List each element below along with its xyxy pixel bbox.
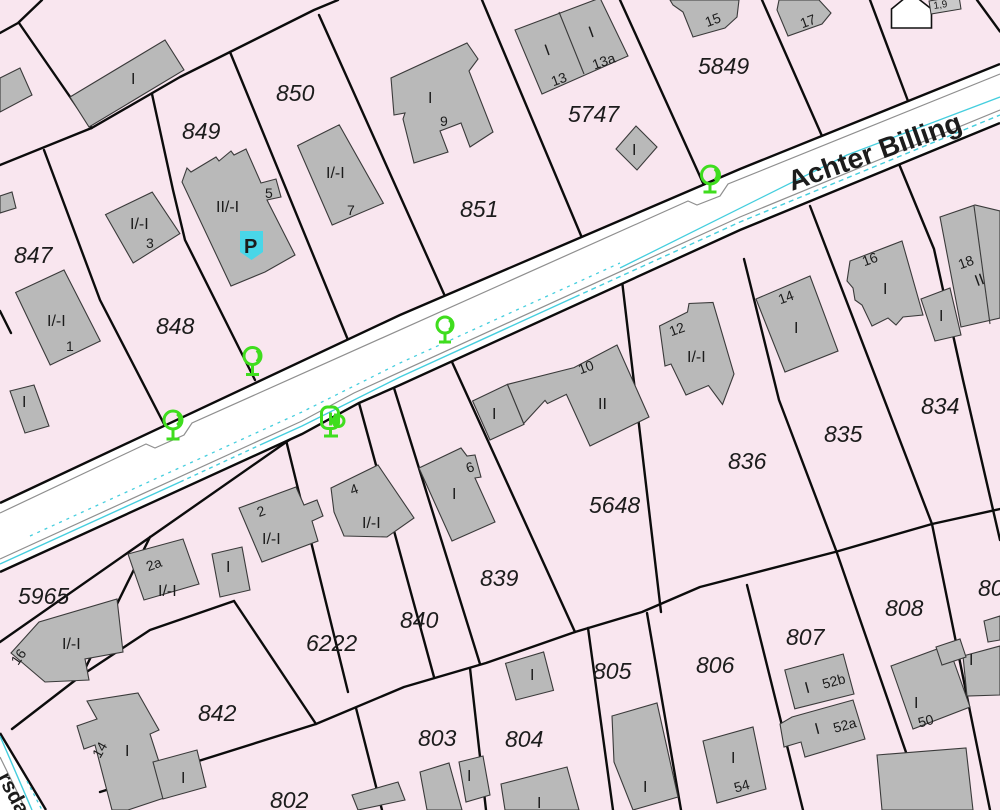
- svg-text:I: I: [181, 770, 185, 787]
- svg-text:80: 80: [978, 575, 1000, 601]
- svg-text:I: I: [131, 71, 135, 88]
- svg-text:835: 835: [824, 421, 863, 447]
- svg-text:5: 5: [265, 185, 273, 201]
- svg-text:I: I: [467, 768, 471, 785]
- svg-text:839: 839: [480, 565, 519, 591]
- svg-text:I: I: [969, 652, 973, 669]
- svg-text:803: 803: [418, 725, 457, 751]
- svg-text:P: P: [244, 236, 257, 258]
- svg-text:842: 842: [198, 700, 237, 726]
- svg-text:851: 851: [460, 196, 498, 222]
- svg-text:I: I: [492, 406, 496, 423]
- svg-text:9: 9: [440, 113, 448, 129]
- svg-text:I: I: [883, 281, 887, 298]
- svg-text:5648: 5648: [589, 492, 640, 518]
- svg-text:I: I: [537, 795, 541, 810]
- svg-text:I/-I: I/-I: [362, 515, 381, 532]
- svg-text:808: 808: [885, 595, 924, 621]
- svg-text:3: 3: [146, 235, 154, 251]
- svg-text:7: 7: [347, 202, 355, 218]
- svg-text:I/-I: I/-I: [326, 165, 345, 182]
- svg-text:I/-I: I/-I: [687, 349, 706, 366]
- svg-text:807: 807: [786, 624, 826, 650]
- svg-text:I: I: [939, 308, 943, 325]
- svg-text:I: I: [22, 394, 26, 411]
- svg-text:834: 834: [921, 393, 959, 419]
- svg-text:I: I: [643, 779, 647, 796]
- svg-text:I: I: [632, 142, 636, 159]
- svg-text:847: 847: [14, 242, 54, 268]
- svg-text:I: I: [428, 90, 432, 107]
- svg-text:5965: 5965: [18, 583, 69, 609]
- svg-text:I/-I: I/-I: [158, 583, 177, 600]
- svg-text:I: I: [226, 559, 230, 576]
- svg-text:805: 805: [593, 658, 632, 684]
- svg-text:I/-I: I/-I: [62, 636, 81, 653]
- svg-text:804: 804: [505, 726, 543, 752]
- svg-text:1: 1: [66, 338, 74, 354]
- svg-text:802: 802: [270, 787, 309, 810]
- svg-text:806: 806: [696, 652, 735, 678]
- svg-text:850: 850: [276, 80, 315, 106]
- svg-text:840: 840: [400, 607, 439, 633]
- svg-text:II: II: [598, 396, 607, 413]
- svg-text:I: I: [452, 486, 456, 503]
- svg-text:I/-I: I/-I: [262, 531, 281, 548]
- svg-text:I: I: [914, 695, 918, 712]
- svg-text:II/-I: II/-I: [216, 199, 239, 216]
- svg-text:I: I: [794, 320, 798, 337]
- svg-text:6222: 6222: [306, 630, 357, 656]
- svg-text:I: I: [731, 750, 735, 767]
- svg-text:I/-I: I/-I: [130, 216, 149, 233]
- svg-text:I: I: [530, 667, 534, 684]
- svg-text:I: I: [125, 743, 129, 760]
- svg-text:5849: 5849: [698, 53, 749, 79]
- svg-text:849: 849: [182, 118, 221, 144]
- svg-text:836: 836: [728, 448, 767, 474]
- svg-text:848: 848: [156, 313, 195, 339]
- svg-text:5747: 5747: [568, 101, 620, 127]
- svg-text:I/-I: I/-I: [47, 313, 66, 330]
